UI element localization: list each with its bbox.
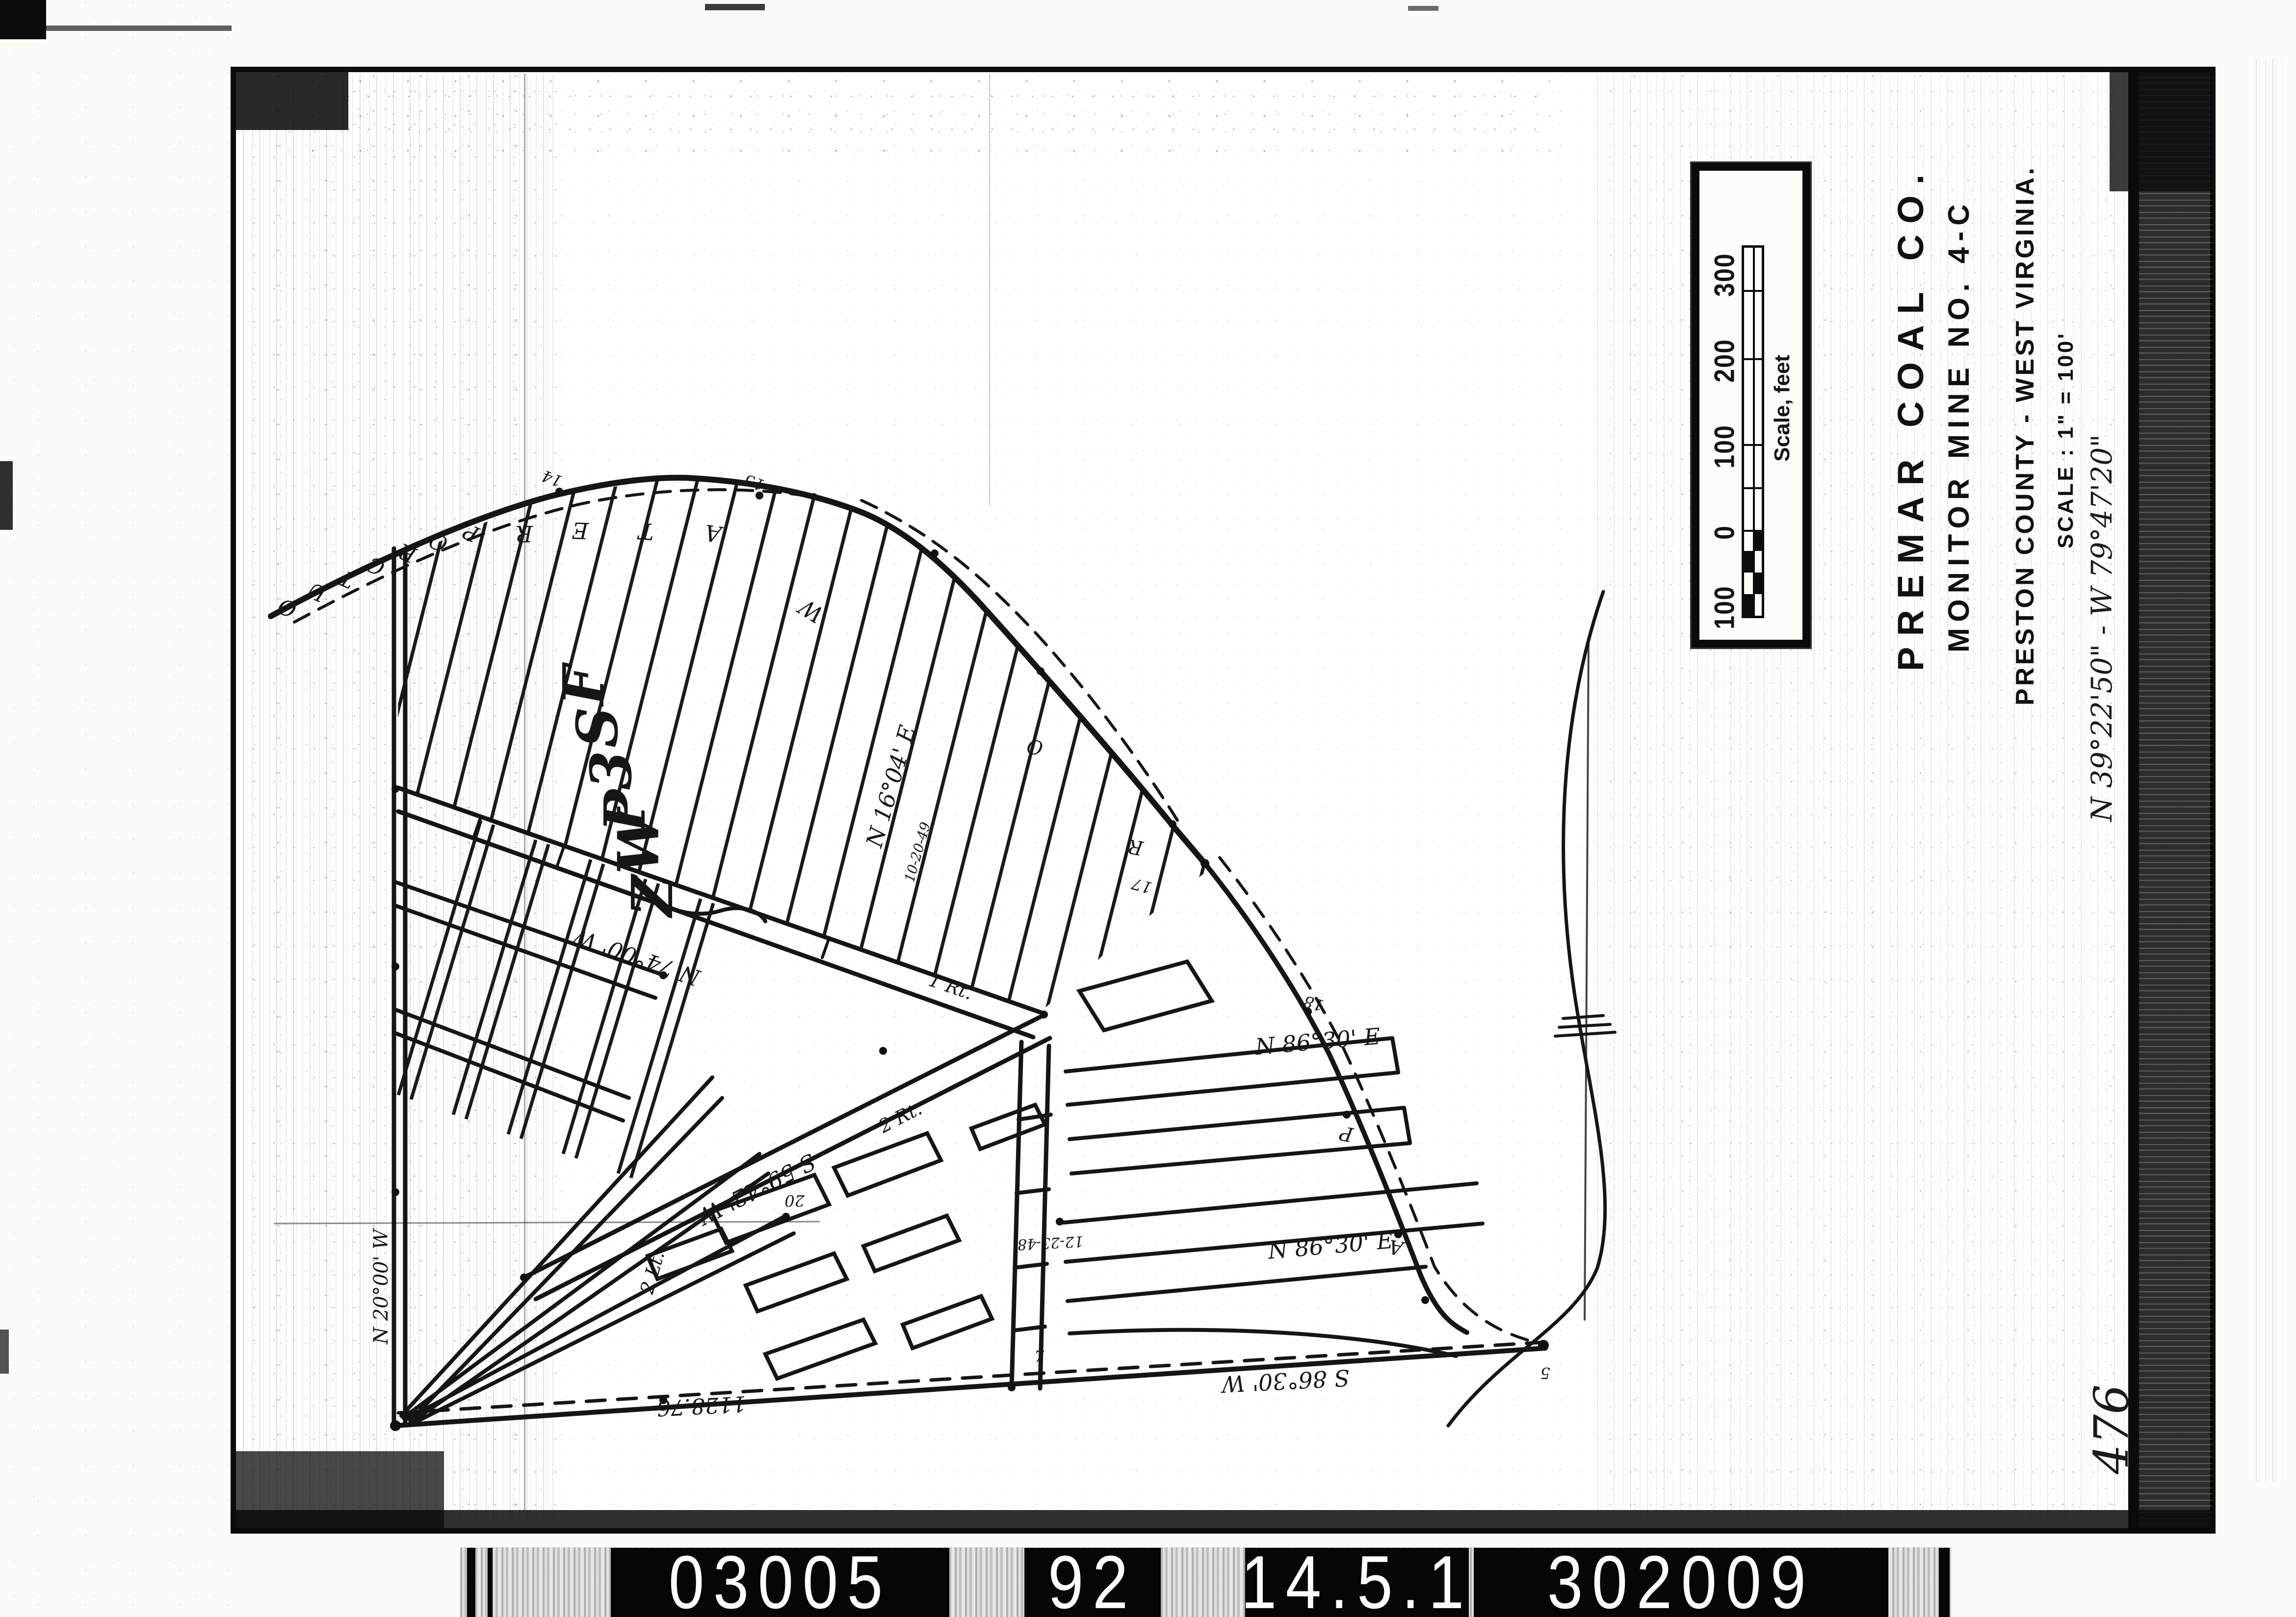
mine-name: MONITOR MINE NO. 4-C <box>1942 198 1976 652</box>
scale-tick-label: 0 <box>1708 525 1741 540</box>
boundary-dashed-inner <box>294 490 805 622</box>
boundary-bottom-solid <box>395 1348 1545 1426</box>
station-label: 5 <box>1540 1364 1550 1382</box>
outcrop-letter: U <box>302 576 330 607</box>
scale-tick-label: 100 <box>1708 585 1741 629</box>
large-letter: F <box>551 662 617 707</box>
water-letter: E <box>572 517 589 544</box>
boundary-left <box>394 548 405 1426</box>
outcrop-letter: O <box>274 593 300 623</box>
entry-label: 2 Rt. <box>875 1097 925 1138</box>
film-number-block: 92 <box>1024 1548 1161 1617</box>
survey-date: 12-23-48 <box>1017 1232 1084 1253</box>
boundary-letter: P <box>1337 1121 1356 1146</box>
scale-tick-label: 200 <box>1708 339 1741 382</box>
vertical-entry <box>1012 1042 1049 1388</box>
outcrop-letter: T <box>334 564 358 593</box>
outcrop-letter: C <box>364 551 389 580</box>
scale-bar: 100 0 100 200 300 Scale, feet <box>1710 184 1799 632</box>
crease-line <box>1585 638 1589 1320</box>
bearing-label: N 20°00' W <box>370 1228 392 1345</box>
station-label: 17 <box>1129 874 1154 897</box>
film-number: 03005 <box>669 1539 892 1617</box>
film-number-block: 302009 <box>1474 1548 1888 1617</box>
stream-line <box>1448 592 1605 1426</box>
bearing-label: N 86°30' E <box>1266 1227 1394 1264</box>
crease-hash-mark <box>1555 1016 1615 1036</box>
boundary-right-solid <box>1205 863 1467 1332</box>
scale-tick-label: 300 <box>1708 253 1741 296</box>
bearing-label: N 86°30' E <box>1253 1023 1382 1060</box>
pillar-quad <box>1079 962 1212 1030</box>
map-labels: O U T C R O P W A T E R F S 3 P W Z N 16… <box>274 467 1550 1421</box>
company-name: PREMAR COAL CO. <box>1890 163 1931 671</box>
mine-location: PRESTON COUNTY - WEST VIRGINIA. <box>2010 165 2040 705</box>
film-number-block: 14.5.1 <box>1245 1548 1469 1617</box>
distance-label: 1128.76 <box>656 1391 747 1420</box>
station-label: 7 <box>1034 1347 1044 1366</box>
large-letter: W <box>606 806 672 874</box>
film-strip-bar <box>467 1548 475 1617</box>
film-number-block: 03005 <box>611 1548 949 1617</box>
latlong-note: N 39°22'50" - W 79°47'20" <box>2085 434 2118 822</box>
water-letter: T <box>636 518 655 545</box>
water-letter: R <box>516 521 533 547</box>
film-number: 92 <box>1048 1539 1137 1617</box>
bearing-label: N 16°04' E <box>861 722 921 851</box>
boundary-bottom-dashed <box>398 1342 1543 1413</box>
sight-line <box>275 1222 819 1224</box>
rooms-upper-right <box>1066 1038 1410 1174</box>
film-strip-bar <box>488 1548 493 1617</box>
large-letter: 3 <box>578 751 645 790</box>
sheet-number: 476 <box>2084 1384 2139 1474</box>
station-label: 14 <box>539 467 564 491</box>
station-label: 20 <box>784 1191 805 1210</box>
entry-label: 1 Rt. <box>926 969 976 1004</box>
scanned-mine-map-page: O U T C R O P W A T E R F S 3 P W Z N 16… <box>0 0 2296 1617</box>
pillar-cluster <box>648 1105 1045 1379</box>
survey-stations <box>390 488 1549 1431</box>
rooms-lower-curve <box>1070 1330 1456 1356</box>
scale-bar-rule <box>1742 245 1764 618</box>
boundary-letter: O <box>1025 734 1044 759</box>
film-number: 14.5.1 <box>1241 1539 1473 1617</box>
fan-entries <box>401 1077 794 1423</box>
scale-note: SCALE : 1" = 100' <box>2054 332 2078 548</box>
film-number: 302009 <box>1547 1539 1815 1617</box>
survey-date: 10-20-49 <box>901 820 934 884</box>
scale-tick-label: 100 <box>1708 424 1741 468</box>
large-letter: S <box>565 707 631 748</box>
scale-bar-caption: Scale, feet <box>1770 355 1795 462</box>
film-strip-bar <box>1939 1548 1950 1617</box>
large-letter: Z <box>620 873 686 918</box>
entry-label: 2 Lt. <box>636 1249 669 1297</box>
diagonal-entry-s59 <box>524 1016 1050 1299</box>
